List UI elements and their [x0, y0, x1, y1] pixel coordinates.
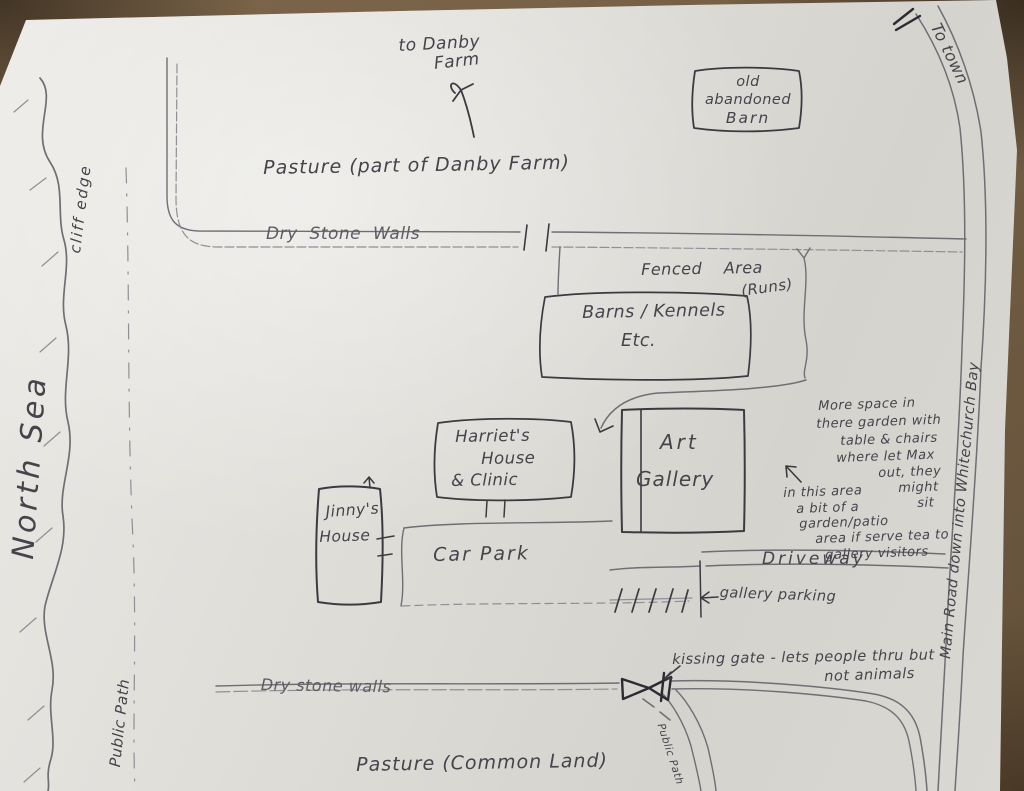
car-park-lines [401, 521, 701, 617]
old-barn-line3: Barn [694, 109, 802, 128]
patio-note-line1: in this area [783, 483, 863, 501]
dry-stone-walls-bottom-label: Dry stone walls [261, 675, 392, 696]
garden-note-line6: might [898, 480, 939, 496]
harriets-house-line2: House [481, 448, 536, 468]
wall-gate-ticks [524, 224, 549, 251]
pasture-bottom-label: Pasture (Common Land) [356, 750, 608, 776]
runs-to-gallery-arrow-icon [595, 380, 806, 432]
jinnys-house-line2: House [319, 526, 371, 546]
old-barn-line1: old [694, 74, 802, 92]
dry-stone-wall-bottom [216, 681, 927, 791]
garden-note-line7: sit [917, 495, 934, 511]
kissing-gate-note-line2: not animals [824, 666, 915, 685]
old-barn-label: old abandoned Barn [694, 74, 802, 128]
patio-area-arrow-icon [786, 466, 801, 482]
jinnys-house-line1: Jinny's [325, 499, 380, 521]
harriets-house-line1: Harriet's [455, 426, 530, 446]
car-park-label: Car Park [433, 542, 530, 566]
gallery-parking-arrow-icon [701, 592, 718, 603]
garden-note-line5: out, they [878, 464, 942, 481]
dry-stone-walls-top-label: Dry Stone Walls [266, 224, 420, 244]
barns-kennels-label: Barns / Kennels [582, 301, 726, 323]
gallery-parking-spaces [610, 589, 718, 612]
photo-of-hand-drawn-map: { "title": "Hand-drawn map of Whitechurc… [0, 0, 1024, 791]
fenced-area-label: Fenced Area [641, 258, 763, 279]
art-gallery-line1: Art [660, 430, 699, 454]
to-town-arrow-icon [894, 9, 920, 30]
driveway-label: Driveway [762, 549, 866, 569]
art-gallery-line2: Gallery [636, 467, 714, 491]
harriets-gate-ticks [486, 500, 505, 517]
kissing-gate-icon [622, 666, 680, 701]
harriets-house-line3: & Clinic [451, 470, 518, 490]
barns-etc-label: Etc. [621, 331, 656, 351]
to-danby-arrow-icon [451, 83, 474, 137]
old-barn-line2: abandoned [694, 92, 802, 110]
